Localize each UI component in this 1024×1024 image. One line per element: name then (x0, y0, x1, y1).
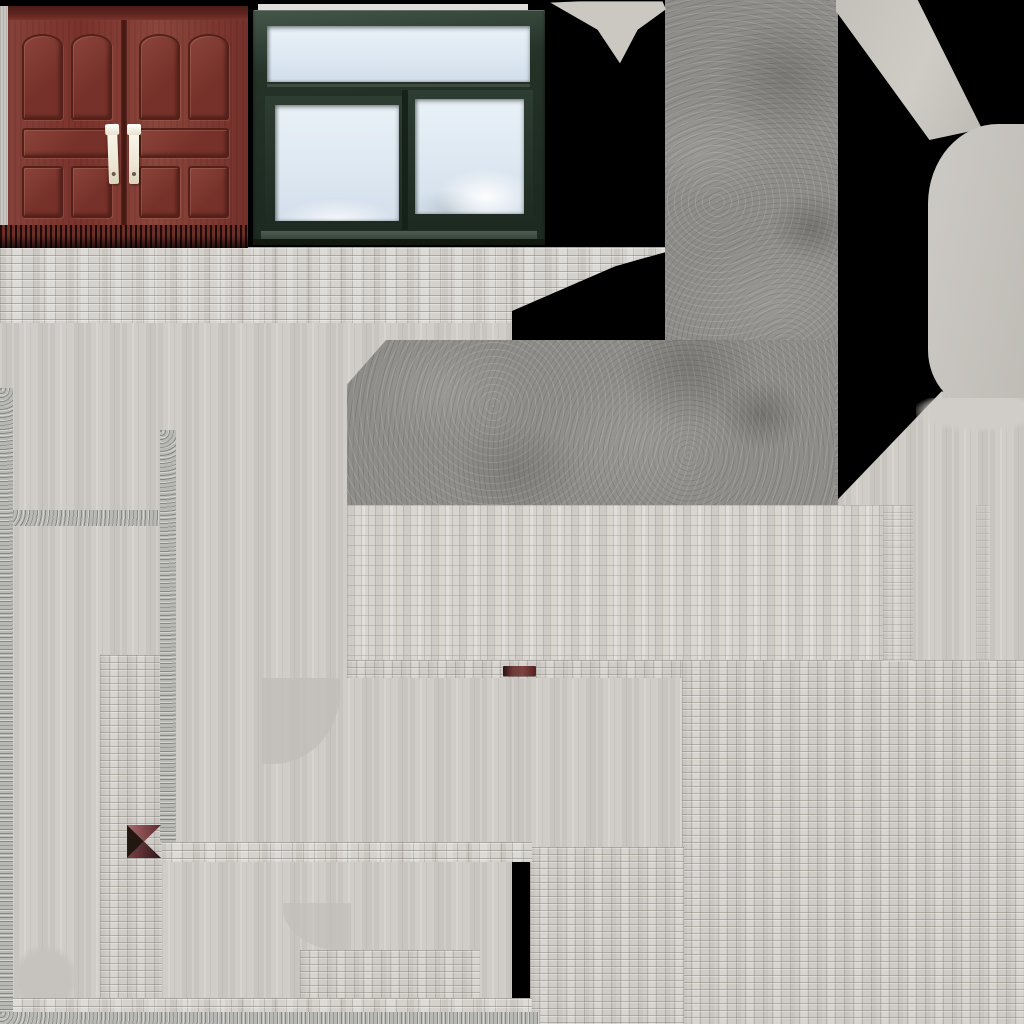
door-panel (139, 34, 180, 120)
door-panel (188, 166, 229, 218)
brick-strip-right-faint-2 (976, 505, 990, 661)
filler-mound (12, 944, 78, 1002)
filler-blob-foot (916, 398, 1024, 432)
speckle-band-bottom (0, 1012, 540, 1024)
window-mid-rail-highlight (267, 84, 530, 87)
door-handle-left (107, 124, 119, 184)
filler-rounded-blob (928, 124, 1024, 410)
filler-diagonal-band (836, 0, 982, 140)
door-panel (139, 128, 229, 158)
door-texture (0, 6, 248, 248)
door-panel (22, 34, 63, 120)
window-transom-pane (267, 26, 530, 82)
texture-atlas (0, 0, 1024, 1024)
door-panel (71, 166, 112, 218)
brick-strip-top-wedge (512, 247, 684, 311)
door-panel (22, 166, 63, 218)
speckle-edge-left (0, 388, 13, 1024)
brick-block-middle (347, 505, 912, 661)
speckle-line-horizontal (0, 510, 172, 526)
window-sill (261, 231, 537, 239)
door-center-stile (121, 20, 127, 225)
window-meeting-stile (402, 90, 408, 230)
filler-field-mid (512, 676, 684, 847)
brick-strip-right-faint-1 (883, 505, 913, 661)
door-panel (22, 128, 112, 158)
brick-band-left-arm (160, 842, 532, 862)
door-bottom-stripes (0, 225, 248, 248)
red-dash-fragment (503, 666, 536, 676)
brick-strip-top (0, 247, 512, 323)
window-left-pane (275, 105, 399, 221)
filler-v-notch (548, 0, 666, 66)
pinwheel-fragment (127, 825, 161, 858)
door-handle-right (129, 124, 139, 184)
speckle-line-vertical (160, 430, 176, 842)
brick-field-bottom-mid (530, 847, 684, 1024)
door-panel (139, 166, 180, 218)
door-panel (71, 34, 112, 120)
brick-field-bottom-right (682, 660, 1024, 1024)
window-right-pane (415, 99, 524, 214)
window-sill-shadow (253, 239, 545, 245)
door-panel (188, 34, 229, 120)
door-top-band (8, 6, 248, 20)
concrete-bar (347, 340, 835, 505)
door-frame-left-strip (0, 6, 8, 248)
window-texture (253, 4, 545, 245)
